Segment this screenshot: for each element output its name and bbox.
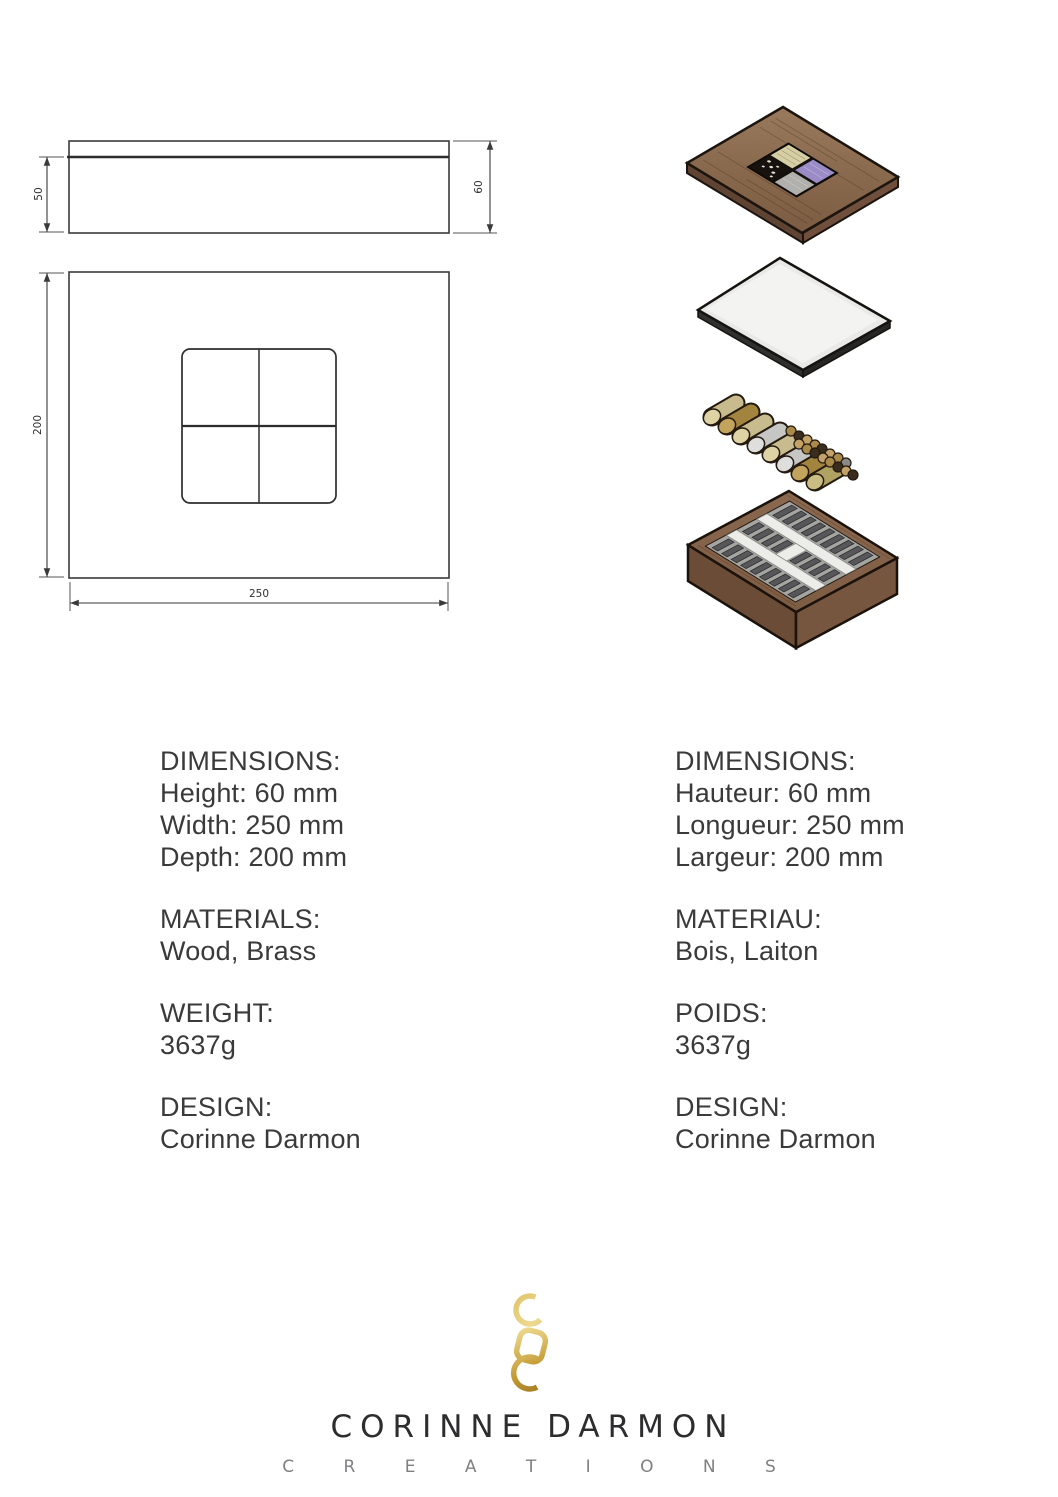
materials-label: MATERIAU: [675,903,905,935]
brand-tagline: C R E A T I O N S [0,1457,1058,1477]
materials-value: Bois, Laiton [675,935,905,967]
weight-value: 3637g [160,1029,361,1061]
brand-footer: CORINNE DARMON C R E A T I O N S [0,1285,1058,1477]
weight-label: WEIGHT: [160,997,361,1029]
dimensions-block-fr: DIMENSIONS: Hauteur: 60 mm Longueur: 250… [675,745,905,873]
dim-label-250: 250 [249,588,269,600]
dim-label-200: 200 [32,415,44,435]
height-value: Height: 60 mm [160,777,361,809]
top-view-drawing: 200 250 [32,272,449,611]
dim-label-50: 50 [33,187,45,200]
render-tray-box [688,491,897,648]
cdc-monogram-logo [494,1285,564,1395]
weight-value: 3637g [675,1029,905,1061]
render-brass-parts [700,403,858,493]
weight-label: POIDS: [675,997,905,1029]
dimensions-block-en: DIMENSIONS: Height: 60 mm Width: 250 mm … [160,745,361,873]
materials-block-en: MATERIALS: Wood, Brass [160,903,361,967]
weight-block-en: WEIGHT: 3637g [160,997,361,1061]
materials-label: MATERIALS: [160,903,361,935]
width-value: Longueur: 250 mm [675,809,905,841]
design-label: DESIGN: [160,1091,361,1123]
dimensions-label: DIMENSIONS: [675,745,905,777]
spec-sheet-page: 50 60 200 250 [0,0,1058,1497]
monogram-top-c [513,1295,540,1327]
width-value: Width: 250 mm [160,809,361,841]
depth-value: Largeur: 200 mm [675,841,905,873]
weight-block-fr: POIDS: 3637g [675,997,905,1061]
depth-value: Depth: 200 mm [160,841,361,873]
dim-label-60: 60 [473,180,485,193]
height-value: Hauteur: 60 mm [675,777,905,809]
dimensions-label: DIMENSIONS: [160,745,361,777]
side-view-drawing: 50 60 [33,141,497,233]
render-lid-top [687,107,898,243]
specs-english: DIMENSIONS: Height: 60 mm Width: 250 mm … [160,745,361,1185]
render-base-plate [698,258,890,377]
specs-french: DIMENSIONS: Hauteur: 60 mm Longueur: 250… [675,745,905,1185]
designer-value: Corinne Darmon [675,1123,905,1155]
materials-block-fr: MATERIAU: Bois, Laiton [675,903,905,967]
designer-value: Corinne Darmon [160,1123,361,1155]
design-label: DESIGN: [675,1091,905,1123]
design-block-en: DESIGN: Corinne Darmon [160,1091,361,1155]
brand-name: CORINNE DARMON [0,1409,1058,1445]
technical-drawing-canvas: 50 60 200 250 [0,0,1058,690]
design-block-fr: DESIGN: Corinne Darmon [675,1091,905,1155]
materials-value: Wood, Brass [160,935,361,967]
